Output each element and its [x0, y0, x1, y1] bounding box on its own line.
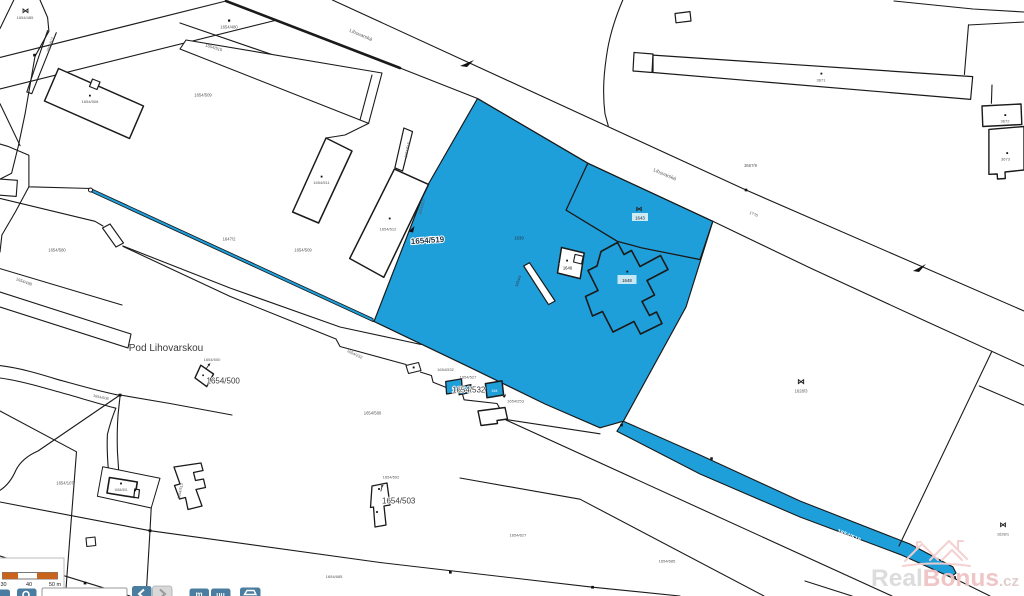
svg-text:1654/509: 1654/509 [294, 248, 312, 253]
svg-text:50 m: 50 m [49, 582, 62, 588]
svg-text:m: m [195, 590, 202, 596]
svg-text:Pod Lihovarskou: Pod Lihovarskou [129, 343, 204, 354]
svg-text:3672: 3672 [1001, 119, 1011, 124]
svg-text:RealBonus.cz: RealBonus.cz [871, 565, 1019, 592]
svg-text:1654/685: 1654/685 [659, 559, 676, 564]
svg-text:1654/502: 1654/502 [383, 475, 400, 480]
svg-text:1628/1: 1628/1 [997, 532, 1010, 537]
svg-text:1654/509: 1654/509 [194, 93, 212, 98]
svg-text:1654/580: 1654/580 [48, 248, 66, 253]
svg-text:1654/501: 1654/501 [114, 488, 128, 492]
svg-text:⋈: ⋈ [797, 377, 805, 386]
svg-text:1654/527: 1654/527 [460, 375, 477, 380]
svg-text:1654/500: 1654/500 [207, 377, 241, 386]
svg-text:40: 40 [26, 582, 32, 588]
svg-text:1654/627: 1654/627 [510, 533, 527, 538]
svg-text:30: 30 [0, 582, 6, 588]
svg-text:uu: uu [216, 592, 225, 596]
svg-text:1639: 1639 [514, 236, 524, 241]
svg-text:⋈: ⋈ [22, 8, 29, 15]
svg-text:1654/532: 1654/532 [437, 367, 454, 372]
svg-text:3671: 3671 [817, 78, 827, 83]
svg-text:1654/480: 1654/480 [220, 25, 238, 30]
svg-text:1654/107: 1654/107 [56, 481, 74, 486]
svg-text:1654/512: 1654/512 [380, 227, 397, 232]
svg-text:1654/685: 1654/685 [326, 574, 343, 579]
svg-text:1654/500: 1654/500 [204, 357, 221, 362]
svg-text:1654/511: 1654/511 [313, 180, 330, 185]
svg-text:3673: 3673 [1001, 157, 1011, 162]
svg-text:⋈: ⋈ [636, 206, 643, 213]
svg-text:1628/3: 1628/3 [795, 389, 808, 394]
svg-text:3667/9: 3667/9 [744, 163, 757, 168]
svg-text:1654/485: 1654/485 [17, 15, 34, 20]
svg-text:1654/580: 1654/580 [364, 411, 382, 416]
svg-text:1643: 1643 [635, 216, 645, 221]
svg-text:1654/253: 1654/253 [507, 399, 524, 404]
svg-text:1648: 1648 [622, 278, 632, 283]
svg-text:1647/2: 1647/2 [223, 237, 236, 242]
svg-text:1646: 1646 [563, 266, 573, 271]
svg-text:⋈: ⋈ [1000, 522, 1007, 529]
svg-text:1654/508: 1654/508 [82, 99, 99, 104]
svg-text:164: 164 [492, 389, 498, 393]
svg-text:1654/532: 1654/532 [452, 386, 486, 395]
svg-text:1654/503: 1654/503 [382, 497, 416, 506]
